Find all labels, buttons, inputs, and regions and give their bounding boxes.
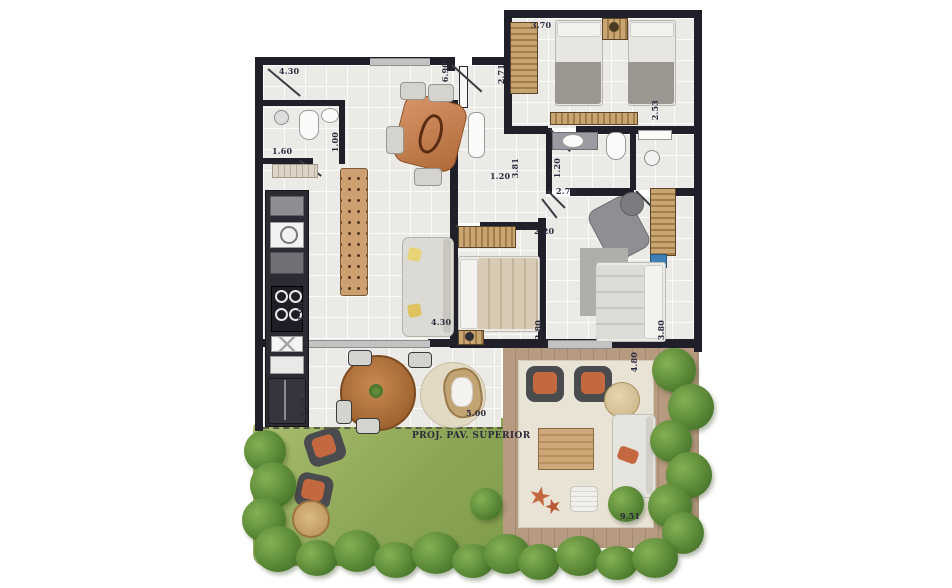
- terrace-chair: [408, 352, 432, 368]
- sideboard: [340, 168, 368, 296]
- round-pouf: [604, 382, 640, 418]
- upper-floor-projection-label: PROJ. PAV. SUPERIOR: [412, 431, 531, 441]
- toilet: [299, 110, 319, 140]
- bathroom-sink: [562, 134, 584, 148]
- wall: [257, 100, 345, 106]
- bath-shelf: [638, 130, 672, 140]
- bed-pillow: [460, 259, 478, 329]
- shower-head: [644, 150, 660, 166]
- wall: [630, 128, 636, 190]
- dim-living-length: 6.90: [440, 62, 450, 82]
- washer-door: [280, 226, 298, 244]
- sofa-back: [646, 416, 653, 494]
- bush: [470, 488, 502, 520]
- dim-bathroom-depth: 1.00: [330, 132, 340, 152]
- table-lamp: [609, 22, 619, 32]
- bed-pillow: [557, 22, 601, 37]
- dim-suite-width: 2.70: [556, 186, 576, 196]
- dim-bedroom-top-depth: 2.53: [650, 100, 660, 120]
- bed-blanket: [628, 62, 674, 104]
- dim-suite-length: 3.80: [656, 320, 666, 340]
- dishwasher: [270, 356, 304, 374]
- bathroom-sink: [321, 108, 339, 123]
- kitchen-sink: [271, 336, 303, 352]
- dim-corridor-length: 3.81: [510, 158, 520, 178]
- towel-decor: [570, 486, 598, 512]
- dim-deck-width: 9.51: [620, 511, 640, 521]
- bed-blanket: [478, 258, 538, 329]
- garden-armchair-cushion: [300, 478, 326, 502]
- terrace-chair: [348, 350, 372, 366]
- floor-plan: ★ ★: [0, 0, 952, 588]
- dining-chair: [428, 84, 454, 102]
- stove-burner: [275, 290, 288, 303]
- bed-blanket: [596, 265, 644, 339]
- kitchen-shelf: [270, 196, 304, 216]
- bush: [518, 544, 560, 580]
- hall-console: [468, 112, 485, 158]
- table-plant: [369, 384, 383, 398]
- wardrobe: [458, 226, 516, 248]
- dim-living-width: 4.30: [431, 317, 451, 327]
- terrace-slider: [299, 340, 430, 348]
- dim-terrace-width: 5.00: [466, 408, 486, 418]
- dim-service-length: 2.10: [298, 398, 308, 418]
- wardrobe: [510, 22, 538, 94]
- bush: [556, 536, 602, 576]
- toilet: [606, 132, 626, 160]
- bush: [632, 538, 678, 578]
- armchair-cushion: [533, 372, 557, 394]
- bush: [254, 526, 302, 572]
- bath-bench: [272, 164, 318, 178]
- dim-suite-bath-width: 1.20: [552, 158, 562, 178]
- rattan-chair-cushion: [451, 377, 473, 407]
- dim-living-top-width: 4.30: [279, 66, 299, 76]
- dining-chair: [386, 126, 404, 154]
- sofa-pillow-yellow: [407, 303, 422, 318]
- fridge-handle: [284, 380, 286, 420]
- dim-kitchen-length: 3.90: [296, 302, 306, 322]
- dim-deck-depth: 4.80: [629, 352, 639, 372]
- wall: [504, 126, 548, 134]
- table-lamp: [465, 332, 474, 341]
- bed-blanket: [555, 62, 601, 104]
- wall: [504, 10, 702, 18]
- coffee-table: [538, 428, 594, 470]
- wardrobe: [650, 188, 676, 256]
- stove-burner: [275, 308, 288, 321]
- dim-bathroom-width: 1.60: [272, 146, 292, 156]
- terrace-chair: [356, 418, 380, 434]
- dresser: [550, 112, 638, 125]
- dim-bedroom-mid-width: 2.20: [534, 226, 554, 236]
- dim-bedroom-mid-length: 2.80: [533, 320, 543, 340]
- wall: [255, 57, 263, 431]
- dim-corridor-width: 1.20: [490, 171, 510, 181]
- window: [370, 58, 430, 66]
- terrace-chair: [336, 400, 352, 424]
- armchair-cushion: [581, 372, 605, 394]
- dim-hall-depth: 2.71: [496, 64, 506, 84]
- bush: [296, 540, 338, 576]
- oven: [270, 252, 304, 274]
- bush: [334, 530, 380, 572]
- wall: [694, 10, 702, 352]
- dining-chair: [400, 82, 426, 100]
- chaise-headrest: [620, 192, 644, 216]
- bush: [374, 542, 418, 578]
- dim-bedroom-top-width: 3.70: [531, 20, 551, 30]
- wall: [428, 339, 455, 347]
- shower-head: [274, 110, 289, 125]
- bed-pillow: [630, 22, 674, 37]
- rattan-side-table: [292, 500, 330, 538]
- bush: [596, 546, 638, 580]
- dining-chair: [414, 168, 442, 186]
- sofa-pillow-yellow: [407, 247, 422, 262]
